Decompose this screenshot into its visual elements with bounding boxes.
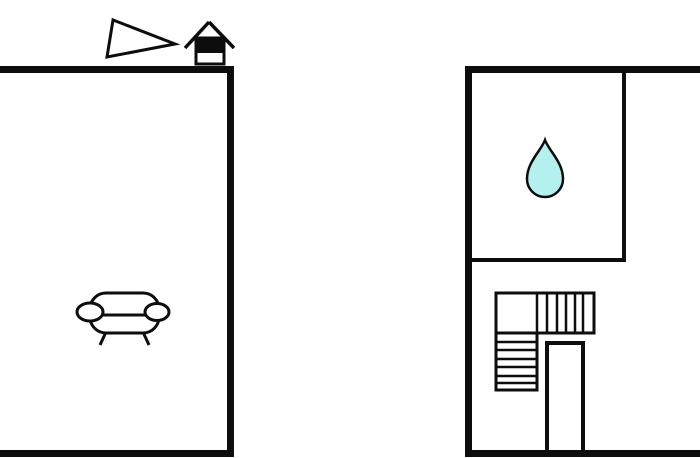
house-icon-band [195,37,225,53]
left-room-bottom-wall [0,450,234,457]
floorplan [0,0,700,458]
floorplan-svg [0,0,700,458]
bathroom-bottom-wall [469,258,626,262]
stairs-upper-run [496,293,594,333]
water-drop-icon [527,140,563,197]
left-room-top-wall [0,66,234,73]
sofa-icon-armrest-left [77,303,103,321]
bathroom-right-wall [622,70,626,262]
sofa-icon-armrest-right [145,304,169,321]
direction-triangle-icon [107,20,175,57]
right-room-bottom-wall [465,450,700,457]
right-room-top-wall [465,66,700,73]
left-room-right-wall [227,66,234,457]
right-room-left-wall [465,66,472,457]
